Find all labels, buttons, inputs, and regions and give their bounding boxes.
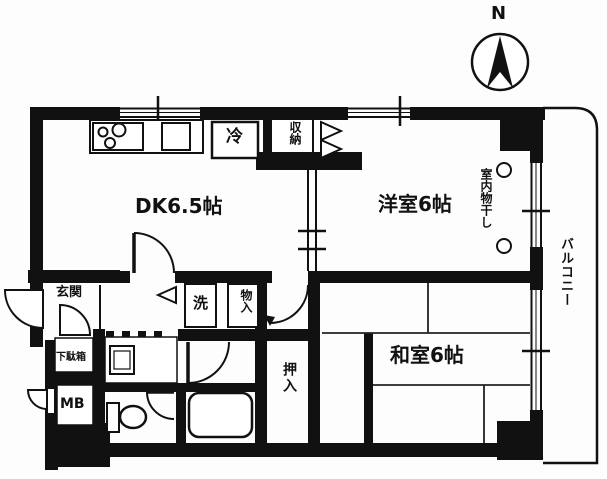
floor-plan-drawing (0, 0, 607, 479)
western-room-top-window (348, 96, 410, 126)
refrigerator-label: 冷 (226, 129, 243, 147)
stove-burner-icon (105, 138, 115, 148)
shoe-cabinet-label: 下駄箱 (56, 353, 86, 364)
stove-burner-icon (99, 128, 108, 137)
compass-north-label: N (491, 5, 506, 24)
western-room-side-window (522, 163, 550, 247)
japanese-room-side-window (522, 290, 550, 410)
drying-hook-icons (497, 163, 511, 253)
compass-rose (472, 34, 528, 90)
bathtub-icon (189, 393, 252, 437)
bathroom-door (188, 342, 229, 383)
toilet-door (147, 392, 174, 419)
japanese-room-label: 和室6帖 (390, 345, 464, 366)
storage-closet-label: 収納 (283, 121, 301, 145)
monoire-label: 物入 (235, 289, 252, 313)
approach-door (264, 285, 308, 326)
meter-box-door (28, 388, 55, 414)
indoor-drying-label: 室内物干し (475, 168, 492, 228)
entrance-label: 玄関 (56, 286, 82, 300)
kitchen-sink-icon (162, 123, 190, 150)
toilet-bowl-icon (120, 406, 146, 428)
walls (28, 107, 545, 470)
floor-plan: N DK6.5帖 洋室6帖 和室6帖 玄関 バルコニー 冷 収納 洗 物入 押入… (0, 0, 607, 479)
dk-partition (298, 170, 326, 271)
dk-room-label: DK6.5帖 (135, 196, 223, 217)
washer-label: 洗 (193, 296, 208, 312)
dk-door (134, 233, 174, 273)
balcony-label: バルコニー (554, 237, 572, 307)
western-room-label: 洋室6帖 (378, 194, 452, 215)
meter-box-label: MB (60, 397, 85, 412)
stove-burner-icon (113, 124, 126, 137)
kitchen-counter (90, 120, 203, 153)
toilet-tank-icon (107, 403, 119, 432)
washroom-door-icon (158, 287, 176, 303)
oshiire-label: 押入 (277, 362, 296, 394)
washroom-threshold-dashes (106, 331, 162, 337)
